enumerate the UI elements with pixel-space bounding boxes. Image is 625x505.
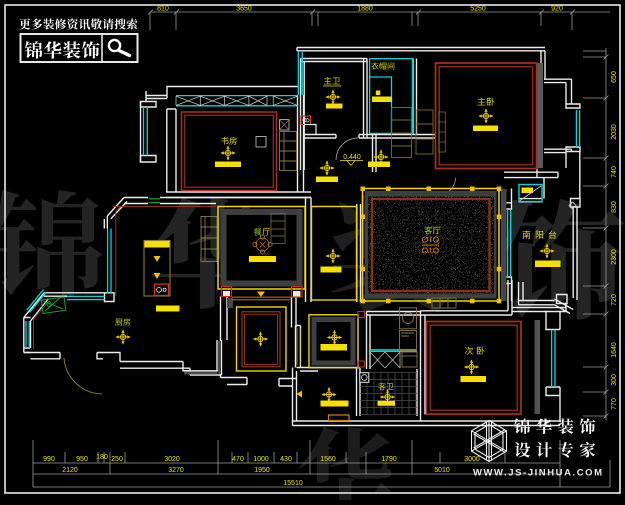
svg-text:300: 300: [611, 374, 618, 386]
svg-text:740: 740: [611, 166, 618, 178]
svg-text:810: 810: [157, 6, 169, 13]
svg-text:15510: 15510: [283, 480, 303, 487]
svg-text:250: 250: [111, 456, 123, 463]
svg-text:430: 430: [280, 456, 292, 463]
svg-text:830: 830: [611, 201, 618, 213]
svg-text:950: 950: [76, 456, 88, 463]
svg-text:1950: 1950: [254, 467, 270, 474]
svg-text:2120: 2120: [62, 467, 78, 474]
svg-text:5250: 5250: [470, 6, 486, 13]
svg-text:5010: 5010: [434, 467, 450, 474]
svg-text:1640: 1640: [611, 342, 618, 358]
svg-text:720: 720: [611, 294, 618, 306]
svg-text:1560: 1560: [320, 456, 336, 463]
svg-text:2030: 2030: [611, 124, 618, 140]
svg-text:3650: 3650: [236, 6, 252, 13]
svg-text:0.440: 0.440: [343, 154, 361, 161]
svg-text:2300: 2300: [611, 249, 618, 265]
svg-text:180: 180: [96, 454, 108, 461]
svg-text:990: 990: [43, 456, 55, 463]
svg-text:920: 920: [551, 6, 563, 13]
svg-text:650: 650: [611, 71, 618, 83]
svg-text:1880: 1880: [357, 6, 373, 13]
svg-text:470: 470: [232, 456, 244, 463]
svg-text:1000: 1000: [253, 456, 269, 463]
svg-text:3270: 3270: [168, 467, 184, 474]
svg-text:3020: 3020: [164, 456, 180, 463]
svg-text:770: 770: [611, 398, 618, 410]
svg-text:1790: 1790: [381, 456, 397, 463]
svg-text:3000: 3000: [464, 456, 480, 463]
